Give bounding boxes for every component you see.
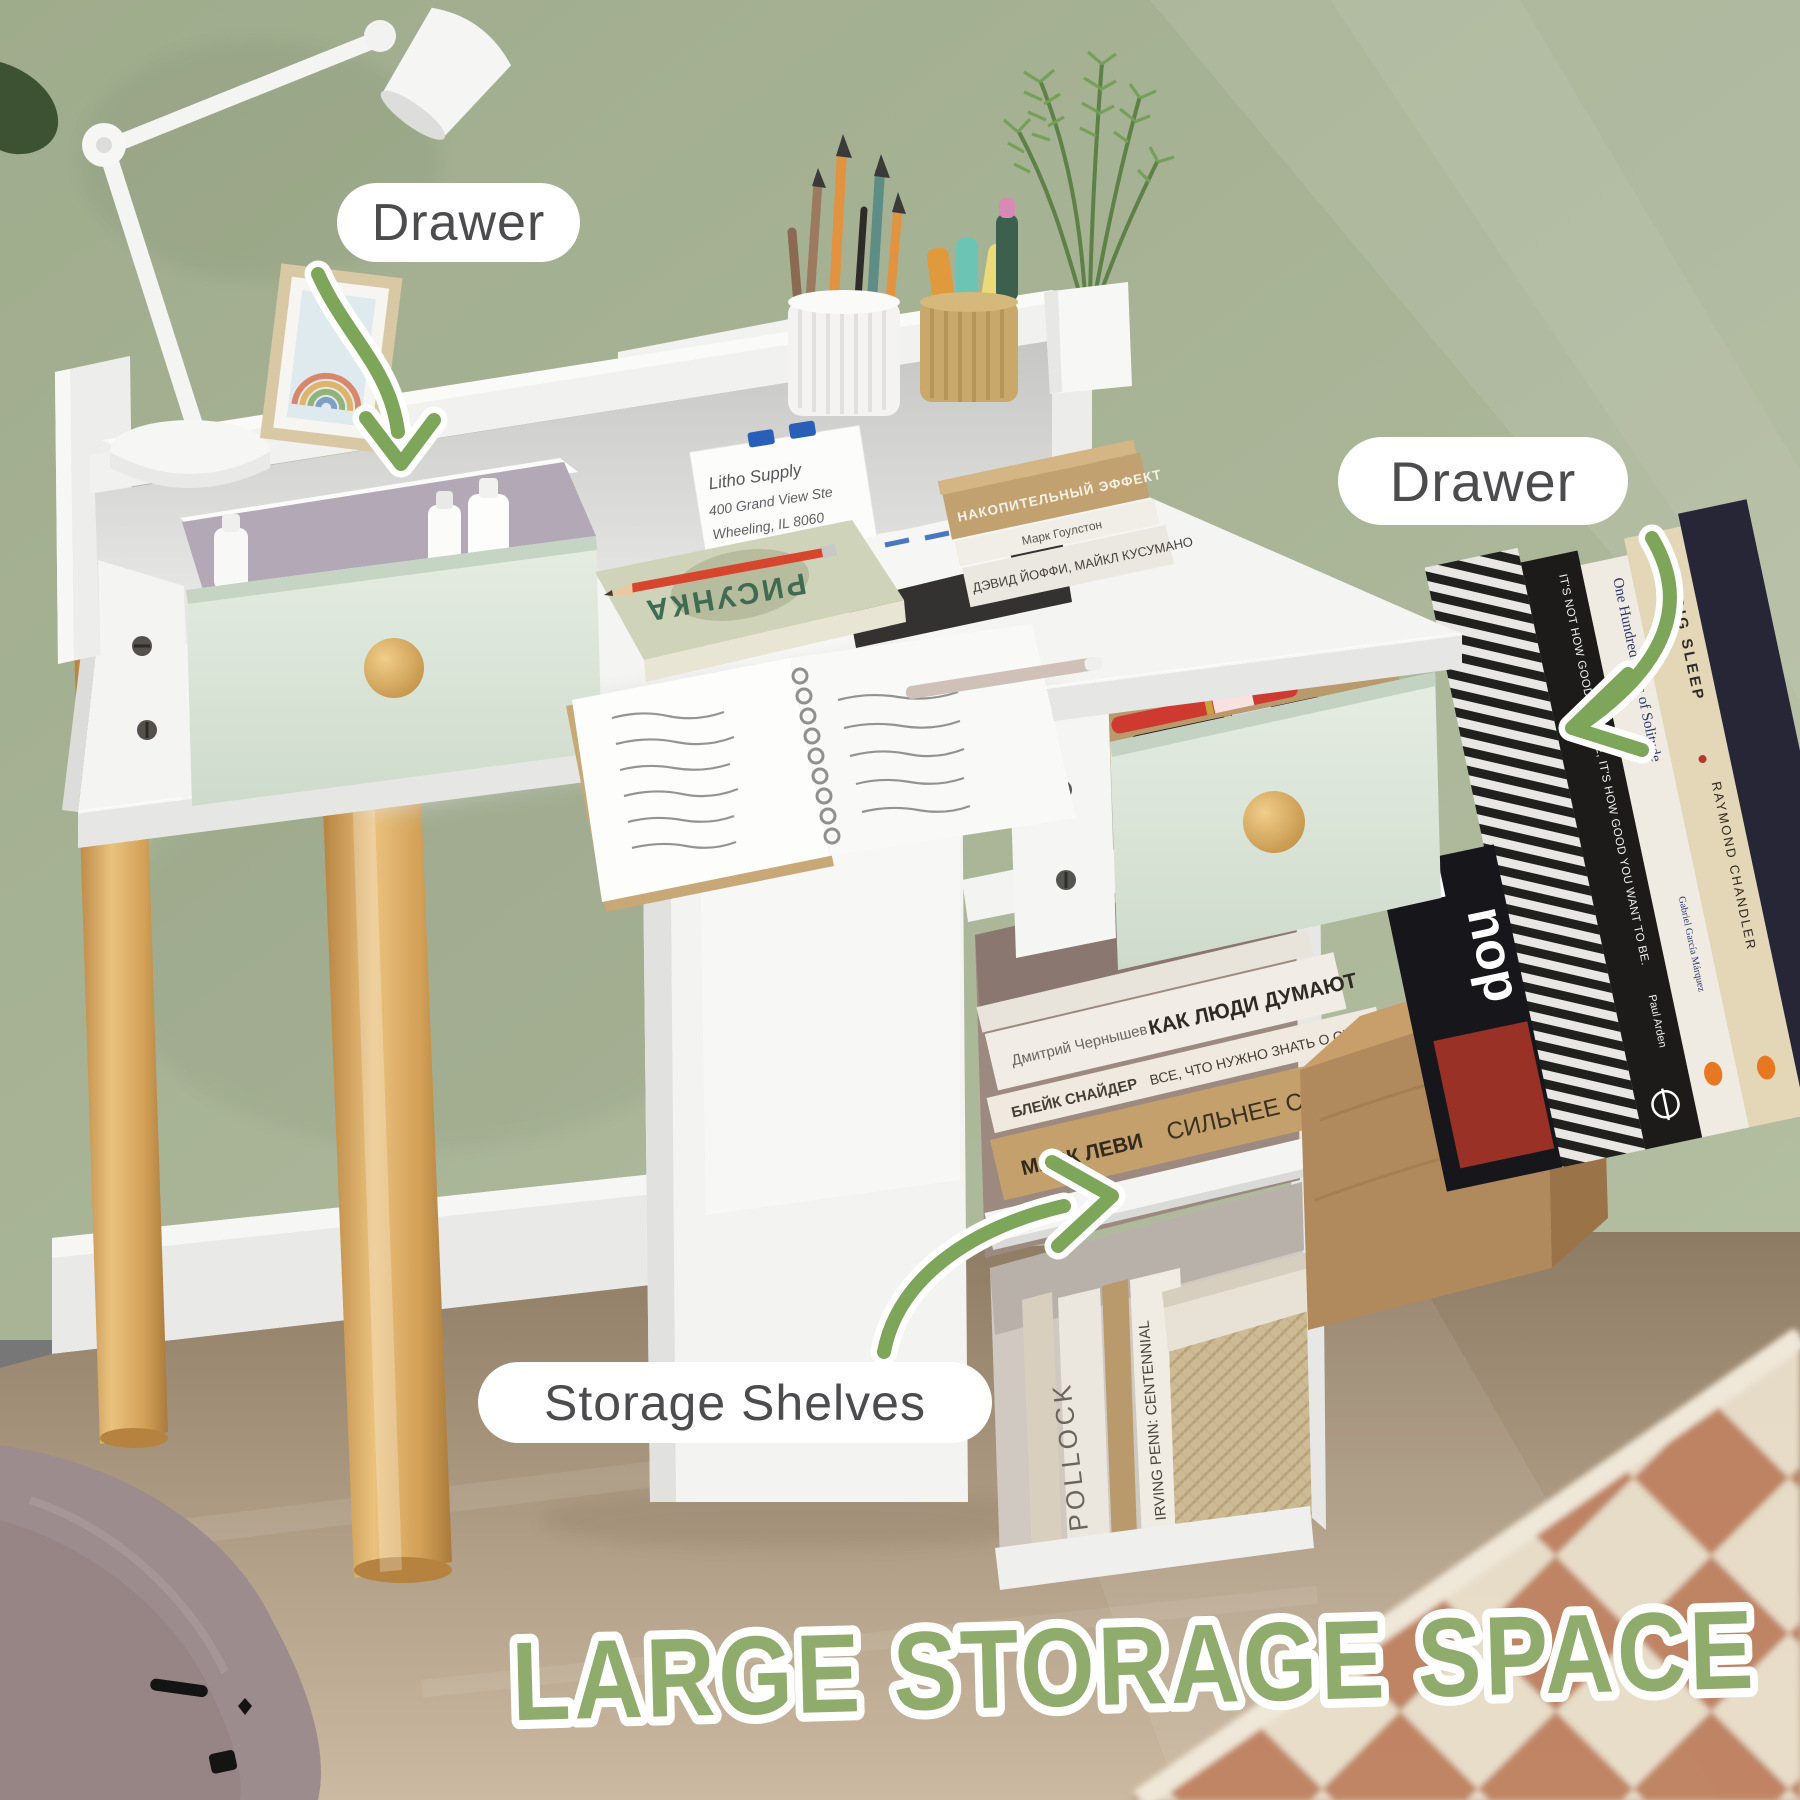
bottom-shelf-items: POLLOCK IRVING PENN: CENTENNIAL (1022, 1252, 1312, 1556)
drawer-knob-right (1243, 791, 1305, 853)
storage-shelves-label: Storage Shelves (478, 1362, 992, 1443)
wicker-basket (1162, 1252, 1312, 1548)
product-image: Дмитрий Чернышев КАК ЛЮДИ ДУМАЮТ БЛЕЙК С… (0, 0, 1800, 1800)
drawer-label-right-text: Drawer (1390, 449, 1576, 514)
storage-shelves-label-text: Storage Shelves (544, 1374, 926, 1432)
drawer-label-top-text: Drawer (372, 193, 546, 253)
drawer-knob-top-left (364, 638, 424, 698)
scene-art: Дмитрий Чернышев КАК ЛЮДИ ДУМАЮТ БЛЕЙК С… (0, 0, 1800, 1800)
drawer-label-top: Drawer (337, 183, 580, 262)
drawer-label-right: Drawer (1338, 437, 1628, 525)
